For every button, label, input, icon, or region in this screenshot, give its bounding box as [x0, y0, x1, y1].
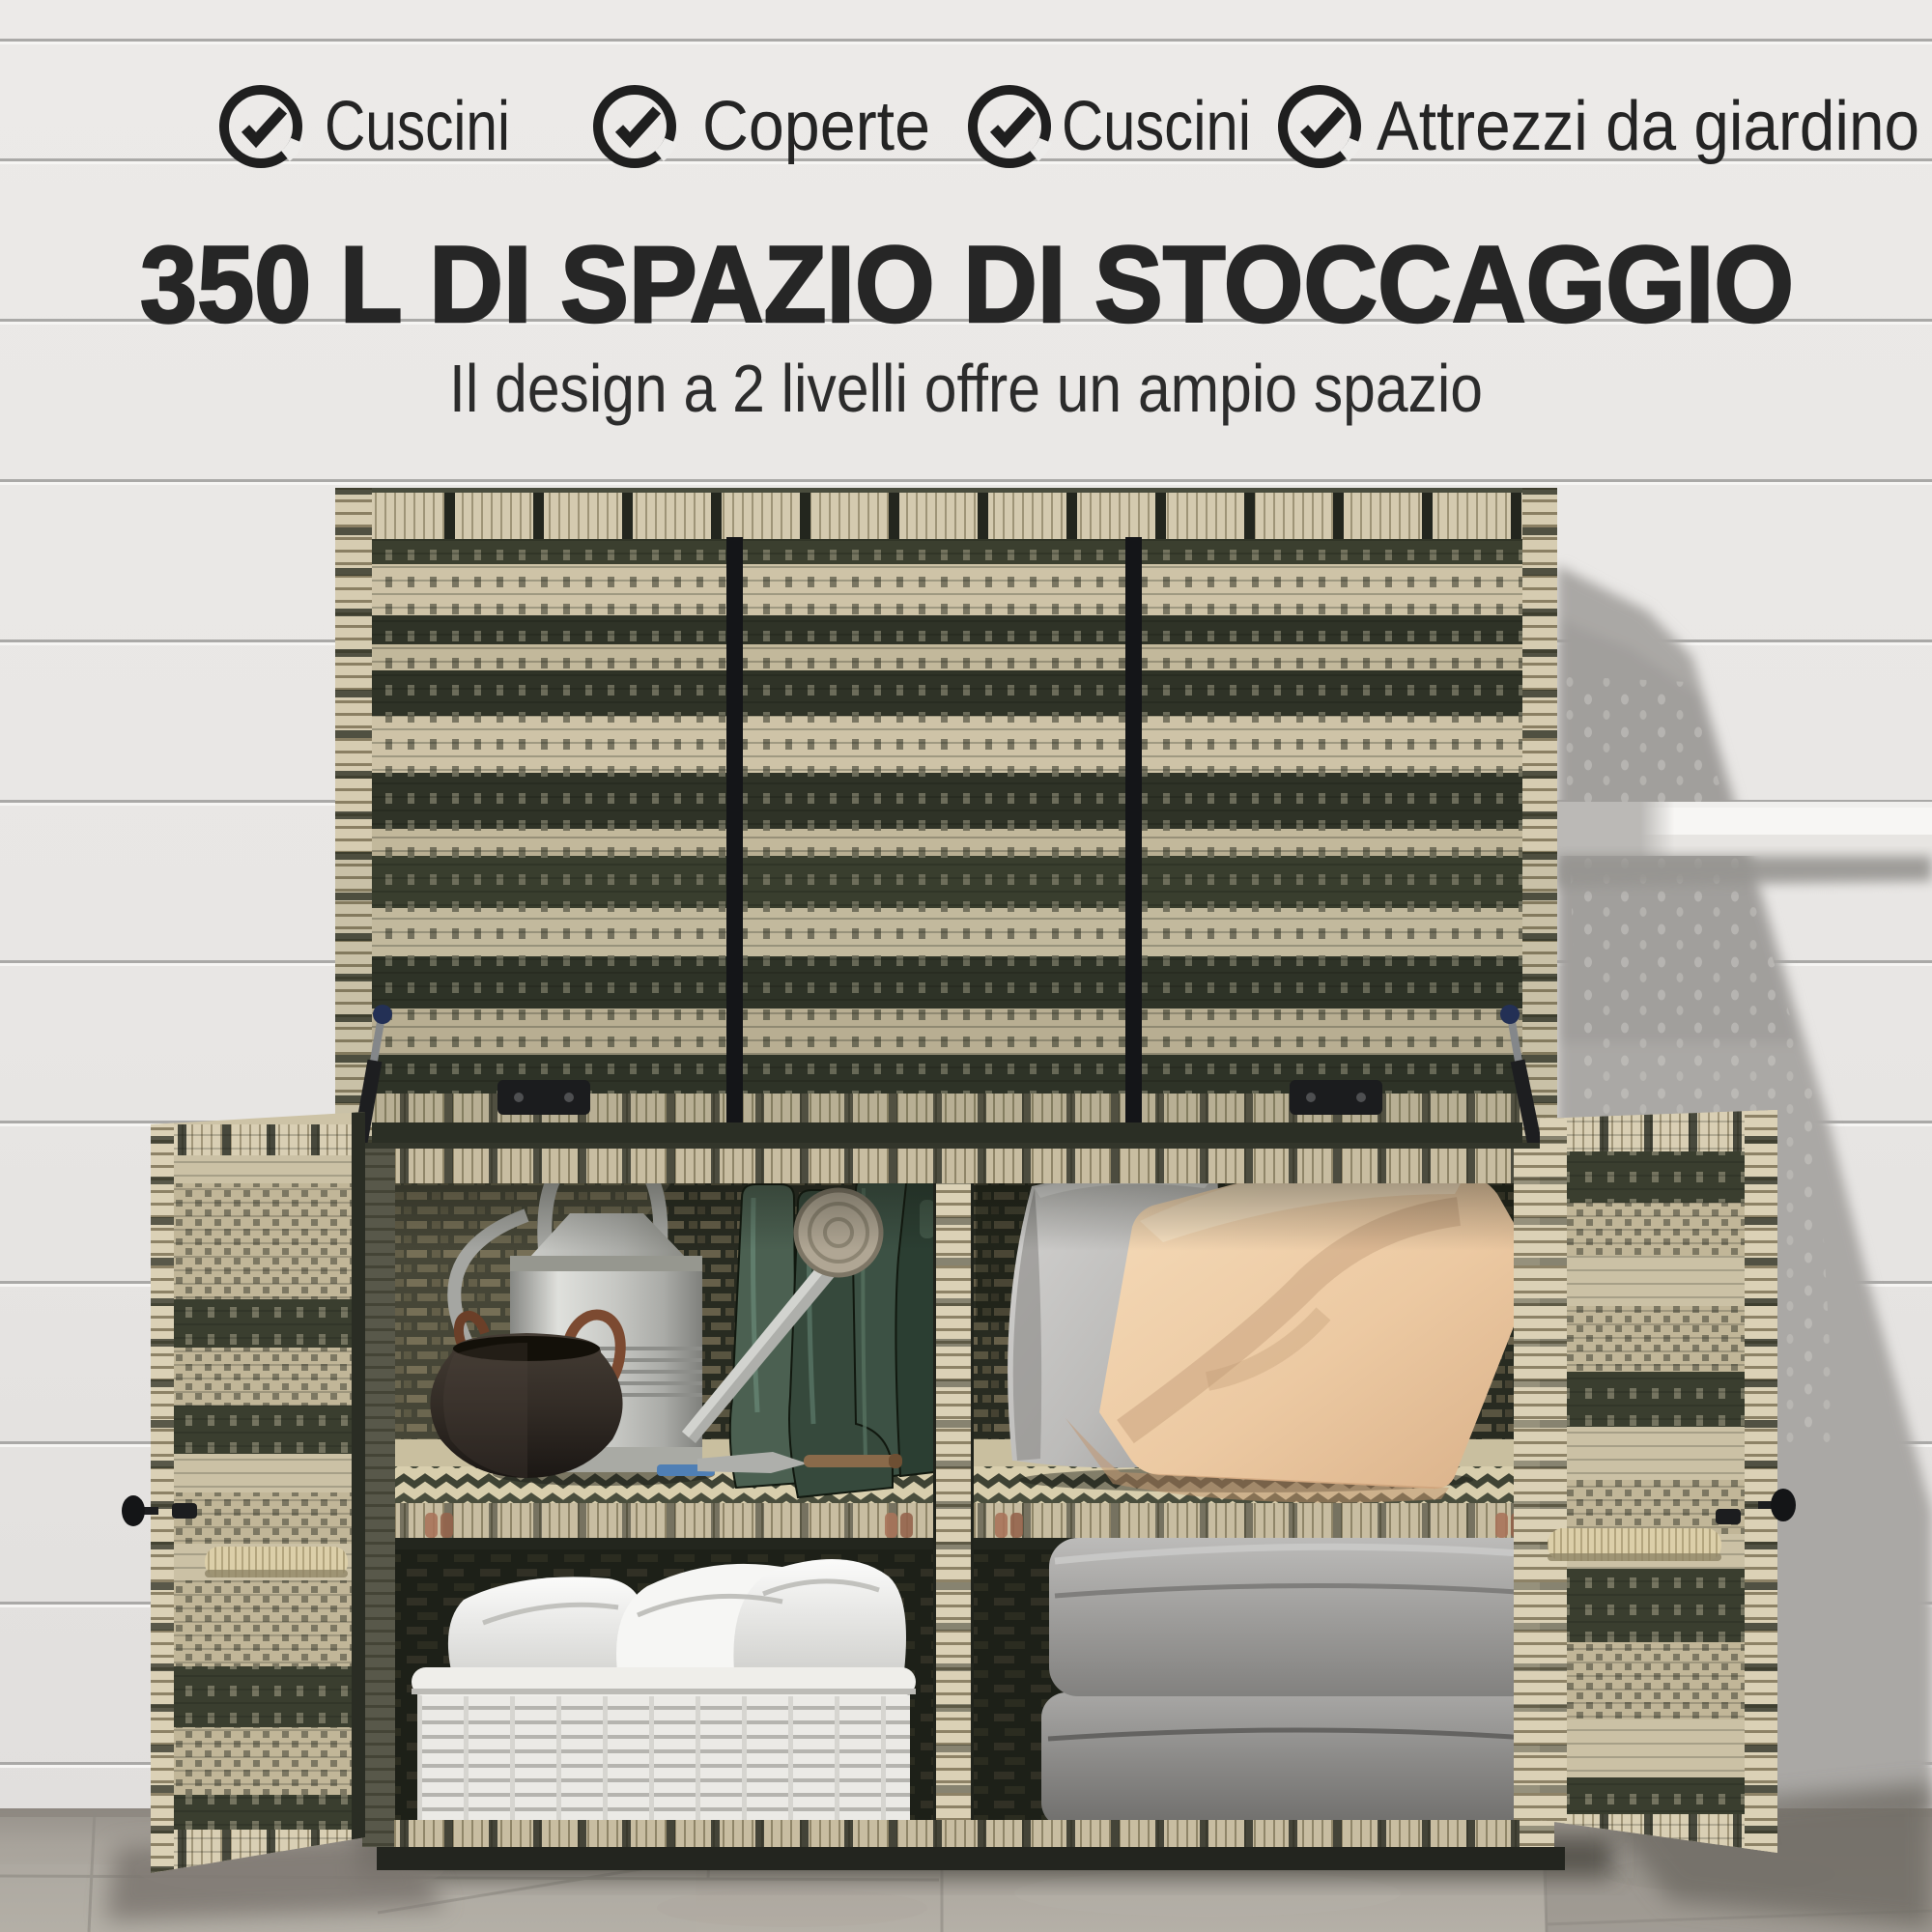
svg-text:350 L DI SPAZIO DI STOCCAGGIO: 350 L DI SPAZIO DI STOCCAGGIO — [140, 224, 1794, 345]
svg-text:Cuscini: Cuscini — [325, 88, 510, 165]
svg-text:Coperte: Coperte — [702, 88, 930, 165]
svg-text:Cuscini: Cuscini — [1062, 88, 1251, 165]
svg-text:Attrezzi da giardino: Attrezzi da giardino — [1377, 88, 1919, 165]
svg-text:Il design a 2 livelli offre un: Il design a 2 livelli offre un ampio spa… — [449, 351, 1483, 426]
